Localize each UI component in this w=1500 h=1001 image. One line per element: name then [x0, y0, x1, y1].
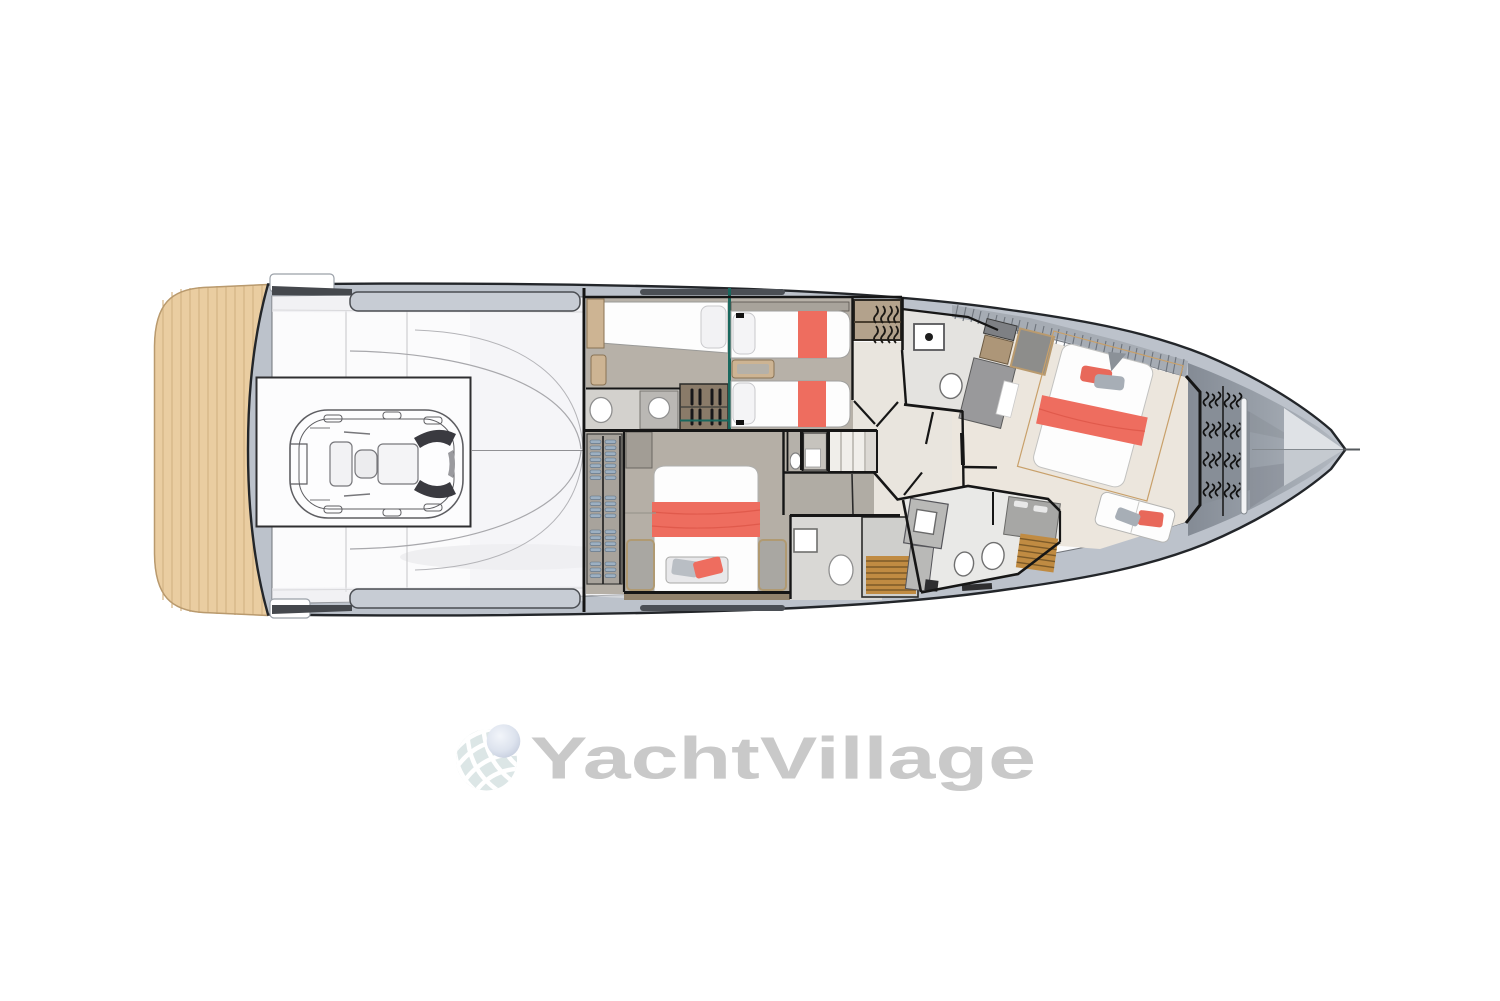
svg-text:YachtVillage: YachtVillage — [530, 726, 1036, 792]
